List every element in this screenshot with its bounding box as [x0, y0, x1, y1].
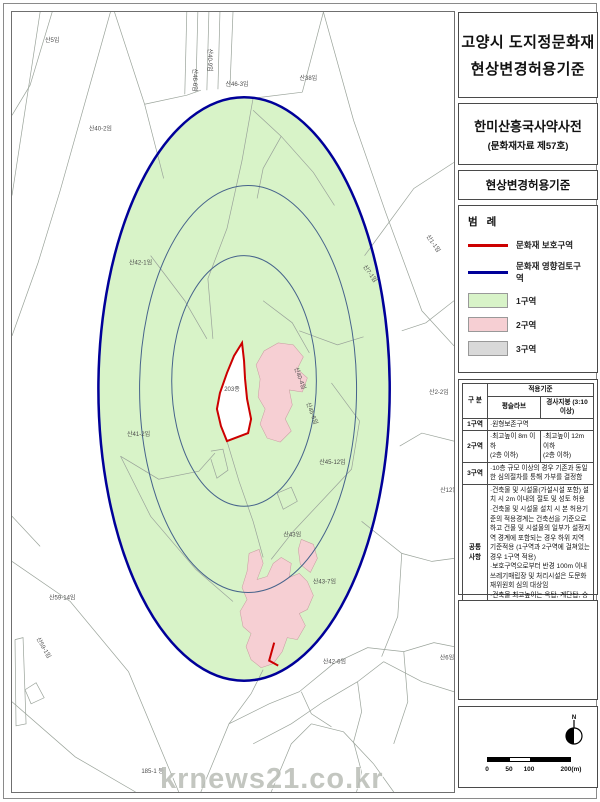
parcel-label: 산41-2임	[127, 430, 150, 438]
scale-tick-0: 0	[485, 766, 489, 773]
review-line-symbol	[468, 271, 508, 274]
north-arrow-icon: N	[563, 713, 585, 747]
col-header-category: 구 분	[463, 384, 488, 419]
heritage-designation: (문화재자료 제57호)	[488, 138, 569, 152]
document-title-line2: 현상변경허용기준	[471, 58, 585, 79]
watermark: krnews21.co.kr	[160, 763, 384, 796]
parcel-label: 산46-6임	[191, 69, 199, 92]
document-title-line1: 고양시 도지정문화재	[461, 31, 594, 52]
document-page: { "page": { "watermark": "krnews21.co.kr…	[0, 0, 600, 802]
criteria-table-box: 구 분 적용기준 평슬라브 경사지붕 (3:10 이상) 1구역 ·원형보존구역…	[458, 379, 598, 595]
scale-tick-100: 100	[524, 766, 535, 773]
zone2-swatch	[468, 317, 508, 332]
col-header-flat-roof: 평슬라브	[488, 396, 541, 418]
legend-item-zone3: 3구역	[468, 341, 588, 356]
empty-panel	[458, 600, 598, 700]
legend-item-review: 문화재 영향검토구역	[468, 260, 588, 284]
document-title-box: 고양시 도지정문화재 현상변경허용기준	[458, 12, 598, 98]
parcel-label: 산43임	[283, 530, 301, 538]
zone3-criteria: ·10층 규모 이상의 경우 기존과 동일한 심의절차를 통해 가부를 결정함	[488, 462, 594, 484]
parcel-label: 산59-14임	[49, 594, 75, 602]
heritage-site-name: 한미산흥국사약사전	[474, 116, 582, 135]
col-header-sloped-roof: 경사지붕 (3:10 이상)	[541, 396, 594, 418]
heritage-site-box: 한미산흥국사약사전 (문화재자료 제57호)	[458, 103, 598, 165]
legend-box: 범 례 문화재 보호구역 문화재 영향검토구역 1구역 2구역 3구역	[458, 205, 598, 373]
protection-line-symbol	[468, 244, 508, 247]
zone2-slope-criteria: ·최고높이 12m 이하 (2층 이하)	[541, 431, 594, 463]
parcel-label: 산42-6임	[323, 658, 346, 666]
parcel-label: 산5임	[45, 36, 59, 44]
parcel-label: 산59-1임	[35, 636, 54, 660]
scale-tick-50: 50	[505, 766, 512, 773]
legend-item-protection: 문화재 보호구역	[468, 239, 588, 251]
parcel-label: 산40-2임	[89, 124, 112, 132]
scale-panel: N 0 50 100 200(m)	[458, 706, 598, 788]
parcel-label: 산2-2임	[429, 388, 449, 396]
scale-tick-200: 200(m)	[561, 766, 582, 773]
cadastral-map: 산5임산40-2임산38임산46-3임산46-6임산40-9임산1-1임산7-1…	[12, 12, 454, 792]
parcel-label: 산42-1임	[129, 259, 152, 267]
zone2-flat-criteria: ·최고높이 8m 이하 (2층 이하)	[488, 431, 541, 463]
parcel-label: 산40-9임	[206, 49, 214, 72]
zone3-swatch	[468, 341, 508, 356]
subtitle: 현상변경허용기준	[486, 177, 571, 193]
zone1-swatch	[468, 293, 508, 308]
subtitle-box: 현상변경허용기준	[458, 170, 598, 200]
map-area: 산5임산40-2임산38임산46-3임산46-6임산40-9임산1-1임산7-1…	[11, 11, 455, 793]
zone3-row-label: 3구역	[463, 462, 488, 484]
criteria-table: 구 분 적용기준 평슬라브 경사지붕 (3:10 이상) 1구역 ·원형보존구역…	[462, 383, 594, 622]
parcel-label: 산1-1임	[425, 233, 443, 254]
zone1-criteria: ·원형보존구역	[488, 418, 594, 431]
parcel-label: 산46-3임	[225, 80, 248, 88]
parcel-label: 산45-12임	[319, 458, 345, 466]
parcel-label: 산6임	[440, 654, 454, 662]
zone1-row-label: 1구역	[463, 418, 488, 431]
parcel-label: 산43-7임	[313, 577, 336, 585]
parcel-label: 203종	[224, 386, 240, 393]
col-header-criteria: 적용기준	[488, 384, 594, 397]
zone2-row-label: 2구역	[463, 431, 488, 463]
legend-title: 범 례	[468, 214, 588, 229]
scale-bar	[487, 757, 571, 762]
legend-item-zone2: 2구역	[468, 317, 588, 332]
legend-item-zone1: 1구역	[468, 293, 588, 308]
parcel-label: 산38임	[299, 74, 317, 82]
parcel-label: 산12임	[440, 486, 454, 494]
